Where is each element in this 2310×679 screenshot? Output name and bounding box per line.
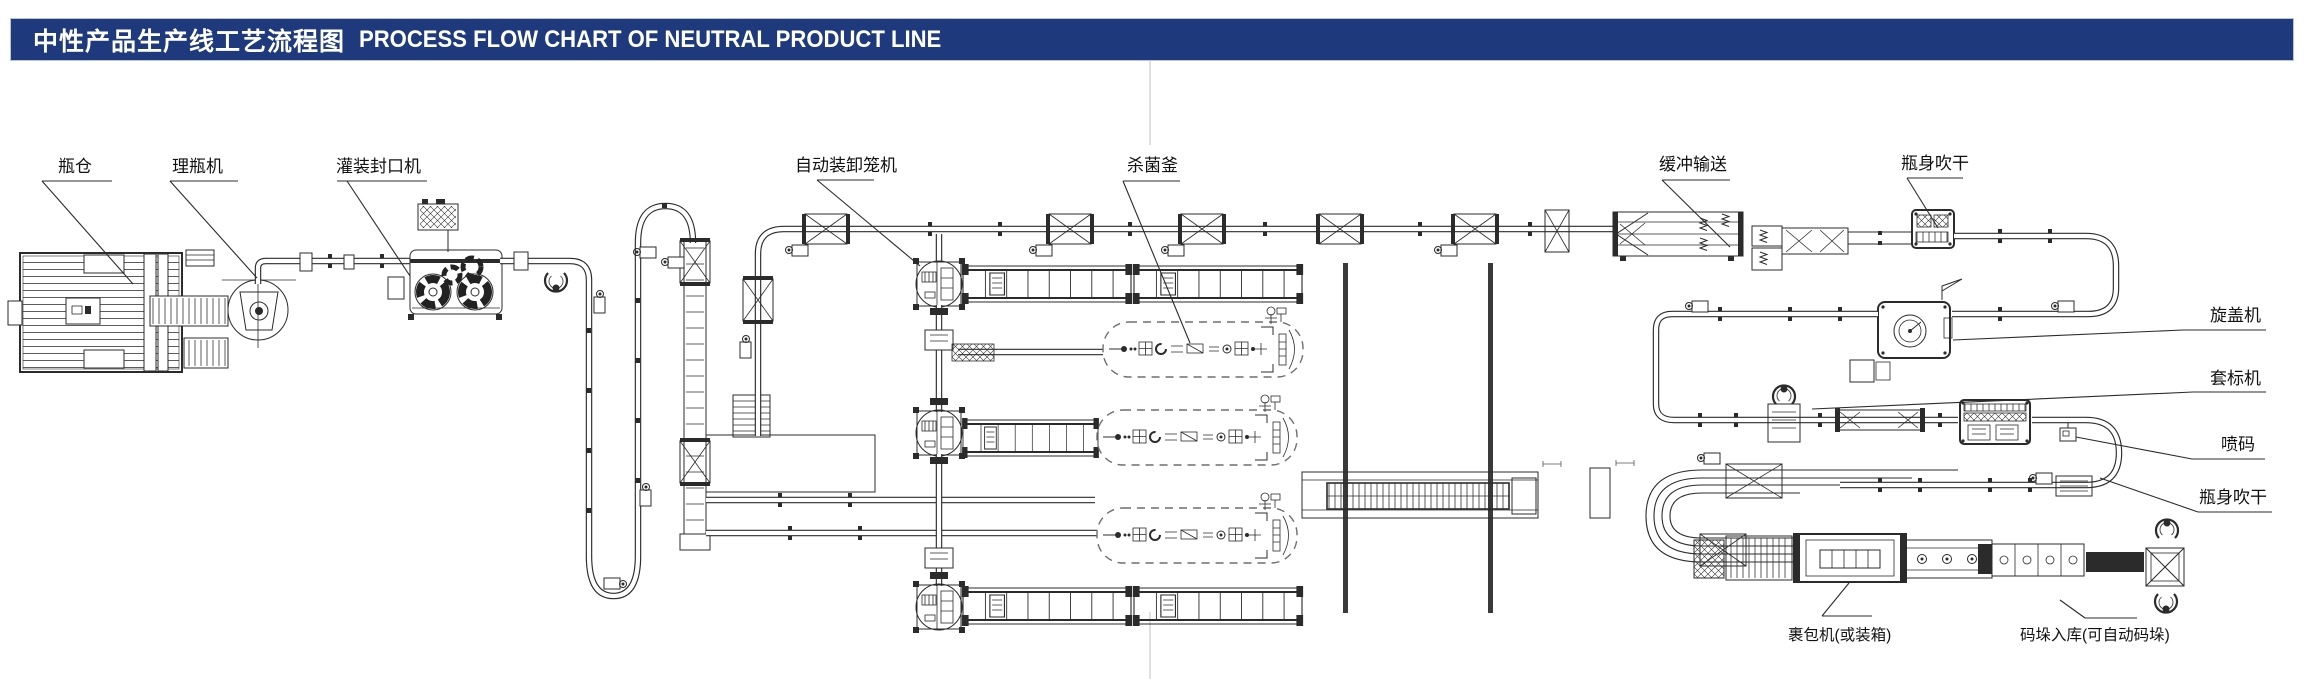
conveyor-capper-to-labeler (1656, 301, 1958, 442)
machine-cage-loaders (913, 234, 965, 633)
basket-rails (706, 493, 1097, 540)
overhead-line (740, 210, 1613, 436)
flow-diagram: 瓶仓 理瓶机 灌装封口机 自动装卸笼机 杀菌釜 缓冲输送 瓶身吹干 旋盖机 套标… (0, 0, 2310, 679)
label-sleeve-labeler: 套标机 (2210, 369, 2261, 388)
machine-palletizer (2146, 519, 2184, 612)
label-dryer-top: 瓶身吹干 (1901, 154, 1969, 173)
label-filler-capper: 灌装封口机 (336, 157, 421, 176)
cross-conveyor (1302, 461, 1561, 518)
conveyor-serpentine (500, 203, 710, 596)
room-walls (1343, 263, 1493, 613)
label-bottle-silo: 瓶仓 (58, 157, 92, 176)
label-capping-machine: 旋盖机 (2210, 306, 2261, 325)
basket-conveyor-rows (952, 264, 1303, 626)
machine-sterilizer-kettles (1097, 307, 1303, 563)
label-cage-loader: 自动装卸笼机 (795, 156, 897, 175)
machine-sleeve-labeler (1960, 400, 2030, 444)
title-bar: 中性产品生产线工艺流程图 PROCESS FLOW CHART OF NEUTR… (10, 18, 2294, 61)
title-chinese: 中性产品生产线工艺流程图 (33, 22, 345, 58)
machine-dryer-top (1912, 210, 1954, 248)
title-english: PROCESS FLOW CHART OF NEUTRAL PRODUCT LI… (359, 26, 941, 54)
conveyor-dryer-to-capper (1952, 229, 2116, 321)
label-inkjet-coder: 喷码 (2221, 435, 2255, 454)
machine-buffer-conveyor (1613, 212, 1912, 270)
label-wrapper: 裹包机(或装箱) (1788, 626, 1891, 644)
label-unscrambler: 理瓶机 (172, 157, 223, 176)
process-flow-chart-page: 瓶仓 理瓶机 灌装封口机 自动装卸笼机 杀菌釜 缓冲输送 瓶身吹干 旋盖机 套标… (0, 0, 2310, 679)
leader-lines (42, 178, 2272, 618)
platform-and-stairs (706, 395, 875, 492)
label-palletizing: 码垛入库(可自动码垛) (2020, 626, 2170, 644)
label-buffer-conveyor: 缓冲输送 (1659, 155, 1727, 174)
label-sterilizer: 杀菌釜 (1127, 156, 1178, 175)
label-dryer-right: 瓶身吹干 (2199, 488, 2267, 507)
machine-capper (1850, 279, 1962, 382)
machine-wrapper (1694, 534, 2144, 582)
